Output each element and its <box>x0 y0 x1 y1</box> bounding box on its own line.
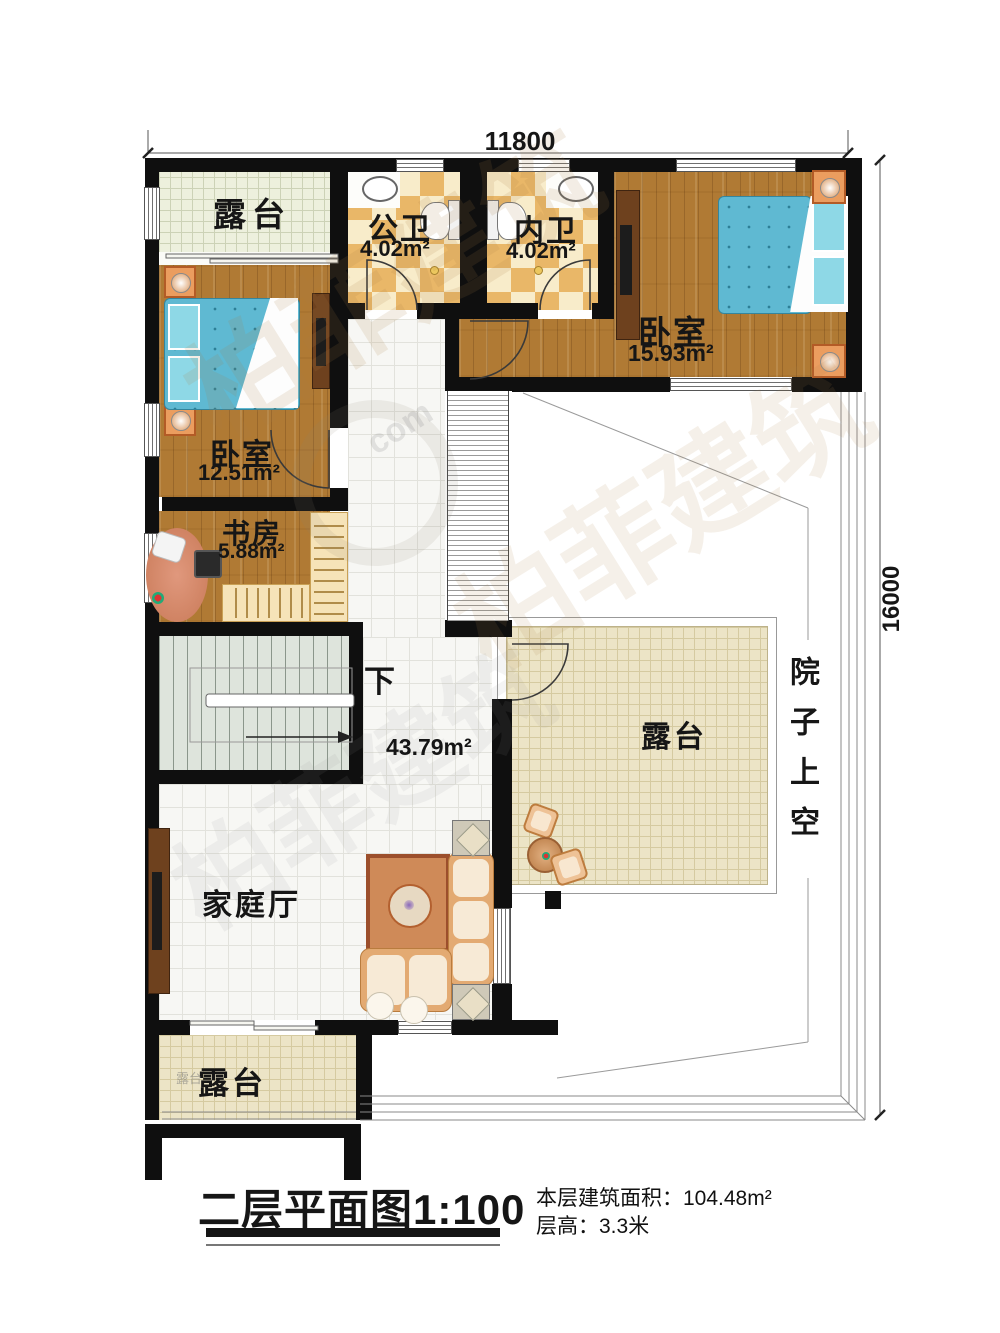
porch-column-right <box>344 1138 361 1180</box>
window-bedroom-right-south <box>670 378 792 391</box>
porch-column-left <box>145 1138 162 1180</box>
bed-left-pillow-1 <box>168 304 200 350</box>
hall-rug <box>366 854 450 952</box>
wall-terrace-bottom-east <box>356 1035 372 1120</box>
end-table-top <box>456 823 490 857</box>
sofa-cushion <box>453 859 489 897</box>
wall-bath-south-1 <box>324 303 365 319</box>
flower-icon <box>152 592 164 604</box>
chair-cushion <box>529 809 552 832</box>
sofa-main <box>448 852 494 986</box>
nightstand-right-1 <box>812 170 846 204</box>
wardrobe-right <box>310 512 348 622</box>
bed-right-pillow-2 <box>812 256 846 306</box>
pillar-terrace-corner <box>545 891 561 909</box>
floor-height-note: 层高：3.3米 <box>536 1210 649 1240</box>
wall-bedroom-right-south-1 <box>512 377 670 392</box>
wall-bath-divider <box>460 158 487 310</box>
staircase <box>159 636 349 770</box>
wall-vestibule-west <box>445 319 459 377</box>
wall-hall-south-1 <box>145 1020 190 1035</box>
tv-bedroom-left <box>316 318 326 366</box>
terrace-top-slider-zone <box>159 252 330 265</box>
wall-vestibule-south <box>445 377 512 391</box>
room-label-terrace-right: 露台 <box>641 712 707 756</box>
wardrobe-hangers <box>314 516 344 618</box>
dimension-top-value: 11800 <box>450 126 590 157</box>
lamp-icon <box>171 273 191 293</box>
dimension-right-value: 16000 <box>878 559 906 639</box>
wall-stairs-east <box>349 636 363 772</box>
bed-left-pillow-2 <box>168 356 200 402</box>
room-label-hall: 家庭厅 <box>202 880 301 924</box>
wall-stairs-south <box>145 770 363 784</box>
bed-left <box>164 298 298 408</box>
room-area-bedroom-right: 15.93m² <box>628 340 714 367</box>
title-underline-thick <box>206 1228 500 1237</box>
wall-bedroom-right-south-2 <box>792 377 862 392</box>
wall-hall-south-2 <box>315 1020 398 1035</box>
wall-east-upper <box>846 158 862 392</box>
sink-inner-icon <box>558 176 594 202</box>
wall-hall-east-1 <box>492 699 512 908</box>
room-area-bedroom-left: 12.51m² <box>198 460 280 486</box>
window-hall-south <box>398 1021 452 1034</box>
nightstand-right-2 <box>812 344 846 378</box>
window-bath-public <box>396 159 444 172</box>
sofa-cushion <box>453 901 489 939</box>
room-area-bath-public: 4.02m² <box>360 236 430 262</box>
floor-area-note: 本层建筑面积：104.48m² <box>536 1182 772 1212</box>
hall-rug-medallion <box>388 884 432 928</box>
wardrobe-hangers <box>226 588 306 618</box>
bed-right-pillow-1 <box>812 202 846 252</box>
lamp-icon <box>820 352 840 372</box>
lamp-icon <box>820 178 840 198</box>
window-bedroom-right-north <box>676 159 796 172</box>
chair-cushion <box>558 855 582 879</box>
stair-direction-label: 下 <box>364 656 395 701</box>
porch-beam <box>145 1124 361 1138</box>
title-underline-thin <box>206 1244 500 1246</box>
wall-hall-south-3 <box>452 1020 558 1035</box>
room-area-hall: 43.79m² <box>386 734 472 761</box>
end-table-top <box>456 987 490 1021</box>
tv-bedroom-right <box>620 225 632 295</box>
window-bath-inner <box>518 159 570 172</box>
wall-left-column-upper <box>330 158 348 428</box>
end-table-2 <box>452 984 490 1020</box>
room-label-terrace-top: 露台 <box>213 188 291 236</box>
wall-bedroom-right-west <box>598 158 614 319</box>
wall-terrace-bottom-west <box>145 1035 159 1120</box>
bed-right <box>718 196 848 312</box>
terrace-bottom-stamp: 露台 <box>176 1068 202 1087</box>
sink-public-icon <box>362 176 398 202</box>
tv-hall <box>152 872 162 950</box>
drain-public-icon <box>430 266 439 275</box>
rug-flower-icon <box>404 900 414 910</box>
wardrobe-bottom <box>222 584 310 622</box>
sofa-pillow <box>400 996 428 1024</box>
wall-bedroom-study-divider <box>162 497 348 511</box>
courtyard-label: 院子上空 <box>779 656 823 876</box>
corridor-floor <box>348 319 445 637</box>
window-bedroom-left-west <box>144 403 160 457</box>
wall-bath-south-2 <box>417 303 538 319</box>
room-area-bath-inner: 4.02m² <box>506 238 576 264</box>
lamp-icon <box>171 411 191 431</box>
room-label-terrace-bottom: 露台 <box>198 1058 266 1103</box>
wall-left-column-stub <box>330 488 348 497</box>
wall-stairs-north <box>145 622 363 636</box>
floor-plan: 柏菲建筑 柏菲建筑 柏菲建筑 com 11800 16000 露台 公卫 4.0… <box>0 0 1000 1333</box>
table-flower-icon <box>542 852 550 860</box>
sofa-cushion <box>453 943 489 981</box>
glass-wall-courtyard <box>447 391 509 621</box>
bedroom-vestibule-floor <box>459 319 614 377</box>
drain-inner-icon <box>534 266 543 275</box>
room-area-study: 5.88m² <box>218 540 285 564</box>
sofa-pillow <box>366 992 394 1020</box>
end-table-1 <box>452 820 490 856</box>
wall-terrace-right-nw <box>445 620 512 637</box>
wall-bath-south-3 <box>592 303 614 319</box>
window-terrace-top-west <box>144 187 160 240</box>
window-hall-east <box>493 908 511 984</box>
nightstand-left-1 <box>164 266 196 298</box>
